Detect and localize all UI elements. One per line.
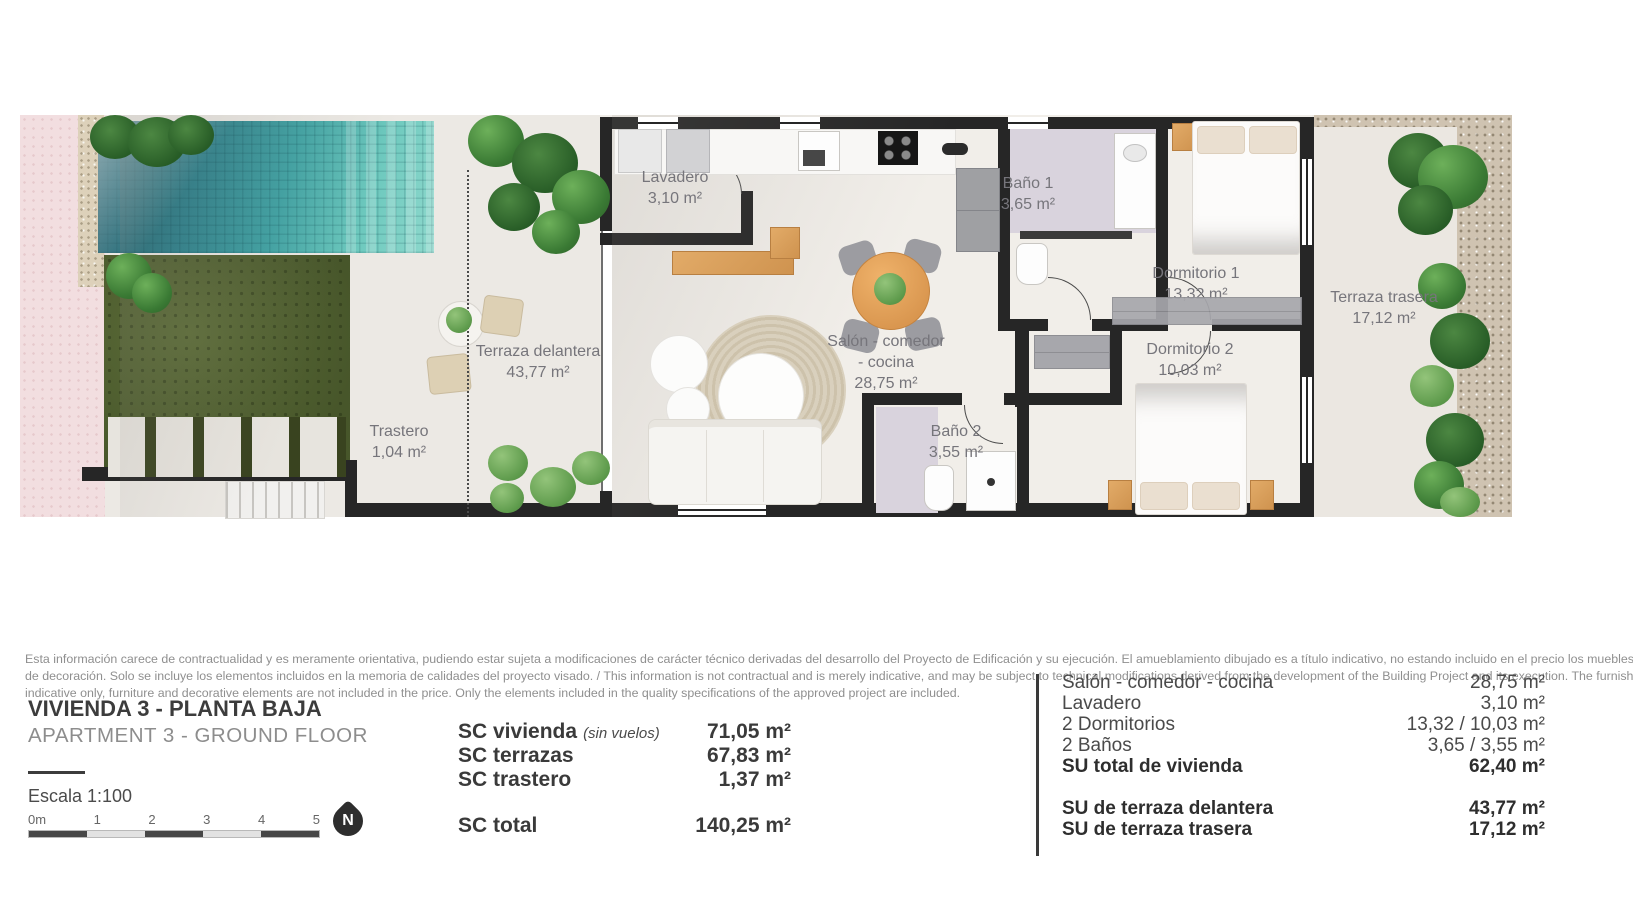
room-area: 1,04 m² — [370, 442, 429, 463]
cooktop-hob — [878, 131, 918, 165]
basin — [1123, 144, 1147, 162]
su-row-value: 62,40 m² — [1469, 756, 1545, 777]
wardrobe-dormitorio1 — [1112, 297, 1302, 325]
wall — [1029, 393, 1122, 405]
table-row: SC trastero 1,37 m² — [458, 768, 791, 792]
window — [780, 117, 820, 129]
pillow — [1197, 126, 1245, 154]
sofa — [648, 419, 822, 505]
su-row-label: Lavadero — [1062, 693, 1141, 714]
su-area-table: Salón - comedor - cocina 28,75 m² Lavade… — [1062, 672, 1545, 840]
sc-label-note: (sin vuelos) — [583, 725, 660, 742]
scale-label: Escala 1:100 — [28, 786, 132, 807]
room-name: Dormitorio 2 — [1146, 339, 1233, 360]
room-name: Terraza delantera — [476, 341, 601, 362]
toilet — [1016, 243, 1048, 285]
su-row-label: Salón - comedor - cocina — [1062, 672, 1273, 693]
sc-row-value: 71,05 m² — [707, 720, 791, 744]
pillow — [1192, 482, 1240, 510]
room-name: Baño 2 — [929, 421, 983, 442]
sc-row-value: 1,37 m² — [719, 768, 791, 792]
room-area: 3,10 m² — [642, 188, 709, 209]
room-area: 43,77 m² — [476, 362, 601, 383]
wood-cabinet — [770, 227, 800, 259]
room-name: Dormitorio 1 — [1152, 263, 1239, 284]
wall — [862, 393, 874, 515]
table-row: 2 Dormitorios 13,32 / 10,03 m² — [1062, 714, 1545, 735]
sc-label-text: SC trastero — [458, 768, 571, 791]
pouf — [650, 335, 708, 393]
bathroom1-vanity — [1114, 133, 1156, 229]
room-area: 10,03 m² — [1146, 360, 1233, 381]
wall — [1004, 393, 1029, 405]
sc-label-text: SC terrazas — [458, 744, 574, 767]
terrace-chair — [480, 294, 525, 337]
window — [1302, 377, 1312, 463]
room-name: Lavadero — [642, 167, 709, 188]
sofa-cushion-seam — [706, 430, 707, 502]
su-row-value: 43,77 m² — [1469, 798, 1545, 819]
kitchen-sink-unit — [798, 131, 840, 171]
su-row-label: 2 Dormitorios — [1062, 714, 1175, 735]
terrace-boundary-dotted-line — [467, 170, 469, 517]
room-name: Baño 1 — [1001, 173, 1055, 194]
sc-row-label: SC trastero — [458, 768, 577, 792]
terrace-table-plant — [446, 307, 472, 333]
sc-total-label: SC total — [458, 814, 537, 838]
pool-steps — [346, 121, 434, 253]
monstera-plant — [532, 210, 580, 254]
table-row: Salón - comedor - cocina 28,75 m² — [1062, 672, 1545, 693]
table-plant — [874, 273, 906, 305]
sc-area-table: SC vivienda(sin vuelos) 71,05 m² SC terr… — [458, 720, 791, 838]
scale-tick: 2 — [148, 812, 155, 827]
table-row: Lavadero 3,10 m² — [1062, 693, 1545, 714]
bed-dormitorio2 — [1135, 383, 1247, 515]
grass-clump — [530, 467, 576, 507]
room-area: 3,55 m² — [929, 442, 983, 463]
room-name: Terraza trasera — [1330, 287, 1438, 308]
paving-slabs — [108, 417, 346, 477]
rear-bush — [1440, 487, 1480, 517]
room-name: Trastero — [370, 421, 429, 442]
rear-bush — [1426, 413, 1484, 467]
scale-bar: 0m 1 2 3 4 5 — [28, 812, 320, 838]
shower-drain — [987, 478, 995, 486]
nightstand — [1108, 480, 1132, 510]
room-label-dormitorio2: Dormitorio 2 10,03 m² — [1146, 339, 1233, 381]
pillow — [1140, 482, 1188, 510]
compass-north-label: N — [333, 806, 363, 836]
su-row-label: SU total de vivienda — [1062, 756, 1243, 777]
table-row-terrace: SU de terraza trasera 17,12 m² — [1062, 819, 1545, 840]
su-row-value: 13,32 / 10,03 m² — [1407, 714, 1545, 735]
rear-bush — [1410, 365, 1454, 407]
toilet — [924, 465, 954, 511]
table-vertical-divider — [1036, 674, 1039, 856]
plan-title-english: APARTMENT 3 - GROUND FLOOR — [28, 724, 368, 748]
grass-clump — [488, 445, 528, 481]
floorplan-page: Lavadero 3,10 m² Baño 1 3,65 m² Dormitor… — [0, 0, 1633, 900]
su-row-label: 2 Baños — [1062, 735, 1132, 756]
sc-row-label: SC vivienda(sin vuelos) — [458, 720, 660, 744]
room-area: 17,12 m² — [1330, 308, 1438, 329]
room-label-terraza-delantera: Terraza delantera 43,77 m² — [476, 341, 601, 383]
scale-tick: 0m — [28, 812, 46, 827]
room-label-lavadero: Lavadero 3,10 m² — [642, 167, 709, 209]
table-row: 2 Baños 3,65 / 3,55 m² — [1062, 735, 1545, 756]
wall — [862, 393, 962, 405]
scale-tick: 1 — [94, 812, 101, 827]
rear-bush — [1430, 313, 1490, 369]
room-label-trastero: Trastero 1,04 m² — [370, 421, 429, 463]
nightstand — [1250, 480, 1274, 510]
window — [1008, 117, 1048, 129]
wall — [1110, 331, 1122, 405]
stairs — [225, 481, 325, 519]
disclaimer-line: Esta información carece de contractualid… — [25, 651, 1633, 668]
window — [678, 505, 766, 515]
wall — [1017, 405, 1029, 515]
monstera-plant — [488, 183, 540, 231]
su-row-value: 17,12 m² — [1469, 819, 1545, 840]
sc-label-text: SC vivienda — [458, 720, 577, 743]
kitchen-faucet — [942, 143, 968, 155]
window — [1302, 159, 1312, 245]
room-label-terraza-trasera: Terraza trasera 17,12 m² — [1330, 287, 1438, 329]
rear-palm — [1398, 185, 1453, 235]
hall-closet — [1034, 335, 1110, 369]
palm-over-pool — [168, 115, 214, 155]
room-name: Salón - comedor — [827, 331, 944, 352]
room-label-salon: Salón - comedor - cocina 28,75 m² — [827, 331, 944, 394]
room-area: 3,65 m² — [1001, 194, 1055, 215]
table-row-total: SC total 140,25 m² — [458, 814, 791, 838]
terrace-chair — [426, 353, 472, 395]
table-row: SC terrazas 67,83 m² — [458, 744, 791, 768]
sink-basin — [803, 150, 825, 166]
su-row-value: 28,75 m² — [1470, 672, 1545, 693]
title-divider — [28, 771, 85, 774]
table-row-terrace: SU de terraza delantera 43,77 m² — [1062, 798, 1545, 819]
room-name: - cocina — [827, 352, 944, 373]
room-area: 28,75 m² — [827, 373, 944, 394]
grass-clump — [572, 451, 610, 485]
garden-plant — [132, 273, 172, 313]
shower-screen — [1020, 231, 1132, 239]
scale-bar-ticks: 0m 1 2 3 4 5 — [28, 812, 320, 827]
scale-tick: 4 — [258, 812, 265, 827]
plan-title-spanish: VIVIENDA 3 - PLANTA BAJA — [28, 696, 322, 722]
su-row-value: 3,65 / 3,55 m² — [1428, 735, 1545, 756]
scale-bar-ruler — [28, 830, 320, 838]
sc-row-value: 67,83 m² — [707, 744, 791, 768]
floor-plan: Lavadero 3,10 m² Baño 1 3,65 m² Dormitor… — [20, 115, 1512, 517]
table-row: SC vivienda(sin vuelos) 71,05 m² — [458, 720, 791, 744]
table-row-total: SU total de vivienda 62,40 m² — [1062, 756, 1545, 777]
su-row-value: 3,10 m² — [1481, 693, 1545, 714]
sc-row-label: SC terrazas — [458, 744, 580, 768]
scale-tick: 5 — [313, 812, 320, 827]
wall — [600, 233, 753, 245]
north-compass-icon: N — [327, 800, 369, 842]
room-label-bano1: Baño 1 3,65 m² — [1001, 173, 1055, 215]
sofa-cushion-seam — [763, 430, 764, 502]
pillow — [1249, 126, 1297, 154]
window — [638, 117, 678, 129]
sc-total-value: 140,25 m² — [695, 814, 791, 838]
su-row-label: SU de terraza trasera — [1062, 819, 1252, 840]
tall-cabinets — [956, 168, 1000, 252]
room-label-bano2: Baño 2 3,55 m² — [929, 421, 983, 463]
wall — [998, 319, 1048, 331]
wall — [600, 491, 612, 517]
scale-tick: 3 — [203, 812, 210, 827]
table-spacer — [1062, 777, 1545, 798]
bed-dormitorio1 — [1192, 121, 1300, 255]
gravel-border-top — [1314, 115, 1457, 127]
su-row-label: SU de terraza delantera — [1062, 798, 1273, 819]
grass-clump — [490, 483, 524, 513]
